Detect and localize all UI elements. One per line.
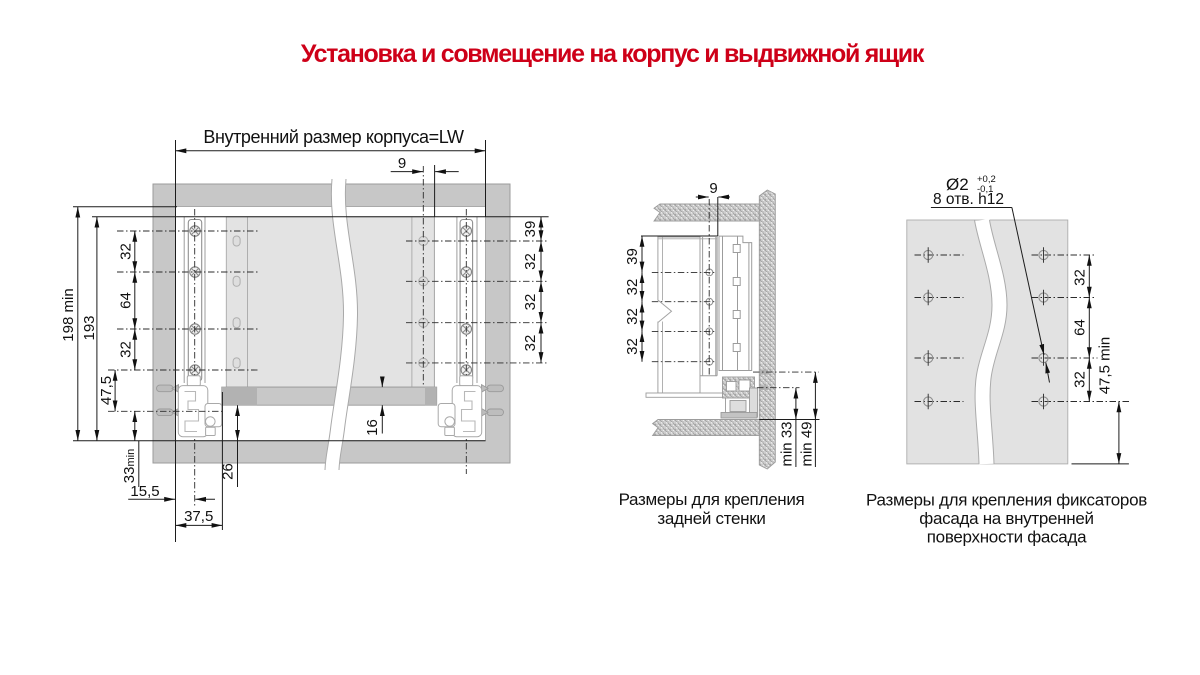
- svg-text:47,5 min: 47,5 min: [1097, 337, 1114, 395]
- svg-text:26: 26: [220, 463, 237, 480]
- svg-text:39: 39: [522, 221, 539, 238]
- svg-text:Размеры для крепления фиксатор: Размеры для крепления фиксаторов: [866, 491, 1147, 510]
- svg-text:32: 32: [1072, 371, 1089, 388]
- svg-text:min 33: min 33: [779, 421, 796, 466]
- svg-text:32: 32: [522, 335, 539, 352]
- svg-text:64: 64: [118, 292, 135, 309]
- svg-text:47,5: 47,5: [98, 376, 115, 405]
- svg-text:64: 64: [1072, 319, 1089, 336]
- svg-text:32: 32: [624, 279, 641, 296]
- svg-text:32: 32: [624, 338, 641, 355]
- svg-text:min 49: min 49: [799, 421, 816, 466]
- svg-text:Внутренний размер корпуса=LW: Внутренний размер корпуса=LW: [203, 127, 464, 147]
- svg-text:37,5: 37,5: [184, 508, 213, 525]
- svg-text:9: 9: [709, 180, 717, 197]
- svg-text:8 отв. h12: 8 отв. h12: [933, 191, 1004, 208]
- svg-text:фасада на внутренней: фасада на внутренней: [919, 509, 1093, 528]
- svg-text:Размеры для крепления: Размеры для крепления: [619, 490, 805, 509]
- svg-text:32: 32: [118, 243, 135, 260]
- svg-text:Установка и совмещение на корп: Установка и совмещение на корпус и выдви…: [301, 40, 925, 68]
- svg-text:32: 32: [522, 253, 539, 270]
- svg-text:32: 32: [522, 294, 539, 311]
- svg-text:32: 32: [118, 341, 135, 358]
- svg-text:32: 32: [624, 308, 641, 325]
- svg-text:16: 16: [364, 419, 381, 436]
- svg-text:задней стенки: задней стенки: [657, 509, 765, 528]
- svg-text:поверхности фасада: поверхности фасада: [927, 528, 1087, 547]
- svg-text:32: 32: [1072, 269, 1089, 286]
- svg-text:15,5: 15,5: [130, 483, 159, 500]
- svg-text:193: 193: [81, 315, 98, 340]
- svg-text:9: 9: [398, 155, 406, 172]
- svg-text:198 min: 198 min: [60, 288, 77, 341]
- svg-text:39: 39: [624, 248, 641, 265]
